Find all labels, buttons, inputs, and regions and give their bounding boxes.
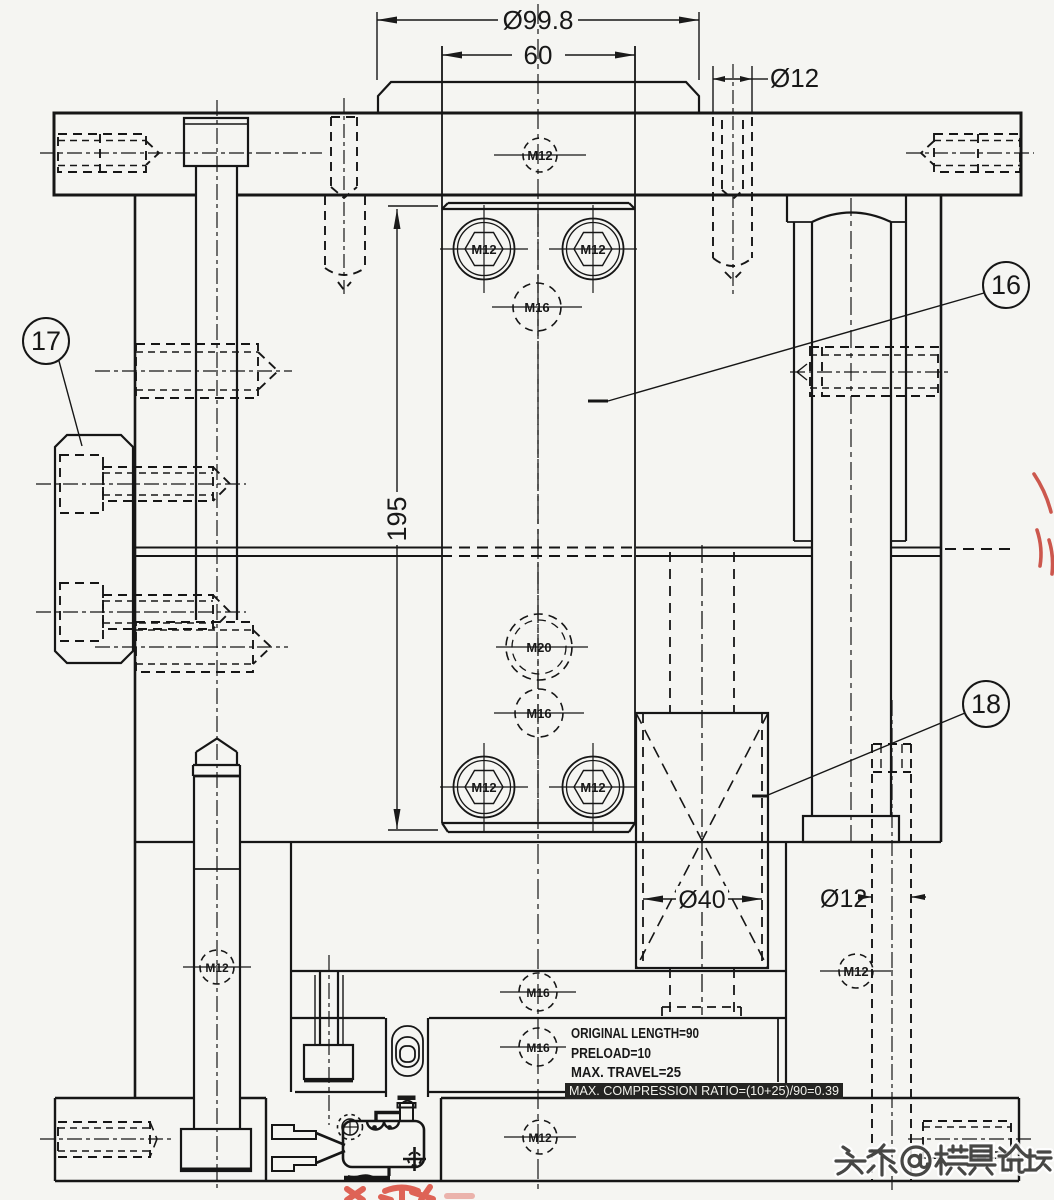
svg-text:M12: M12 — [471, 780, 496, 795]
svg-text:M16: M16 — [524, 300, 549, 315]
svg-text:Ø12: Ø12 — [770, 63, 819, 93]
svg-text:17: 17 — [31, 326, 61, 356]
svg-text:16: 16 — [991, 270, 1021, 300]
svg-text:MAX. TRAVEL=25: MAX. TRAVEL=25 — [571, 1065, 681, 1081]
svg-text:M12: M12 — [580, 780, 605, 795]
svg-text:M12: M12 — [471, 242, 496, 257]
svg-text:M12: M12 — [843, 964, 868, 979]
svg-text:M12: M12 — [205, 961, 229, 975]
svg-text:195: 195 — [382, 496, 412, 541]
svg-text:M12: M12 — [527, 148, 552, 163]
svg-text:M16: M16 — [526, 706, 551, 721]
svg-text:M20: M20 — [526, 640, 551, 655]
svg-text:ORIGINAL LENGTH=90: ORIGINAL LENGTH=90 — [571, 1026, 699, 1042]
svg-text:Ø40: Ø40 — [678, 886, 725, 914]
svg-text:M12: M12 — [580, 242, 605, 257]
svg-text:M12: M12 — [528, 1131, 552, 1145]
svg-text:PRELOAD=10: PRELOAD=10 — [571, 1046, 651, 1062]
svg-text:18: 18 — [971, 689, 1001, 719]
svg-text:MAX. COMPRESSION RATIO=(10+25): MAX. COMPRESSION RATIO=(10+25)/90=0.39 — [569, 1083, 839, 1098]
